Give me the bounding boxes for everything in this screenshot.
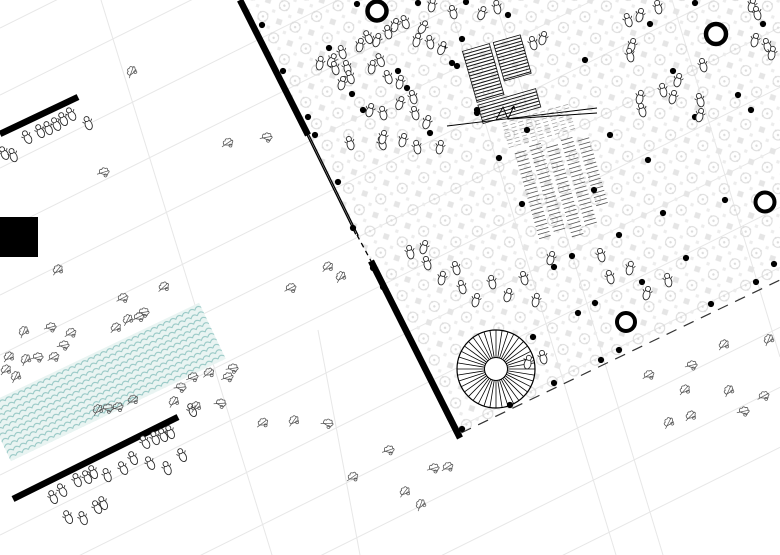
column-ring (706, 24, 726, 44)
site-plan-viewport (0, 0, 780, 555)
column-ring (617, 313, 635, 331)
site-plan-canvas (0, 0, 780, 555)
column-ring (756, 193, 775, 212)
building-footprint-solid (0, 217, 38, 257)
column-ring (368, 2, 387, 21)
radial-plaza-feature (457, 330, 535, 408)
